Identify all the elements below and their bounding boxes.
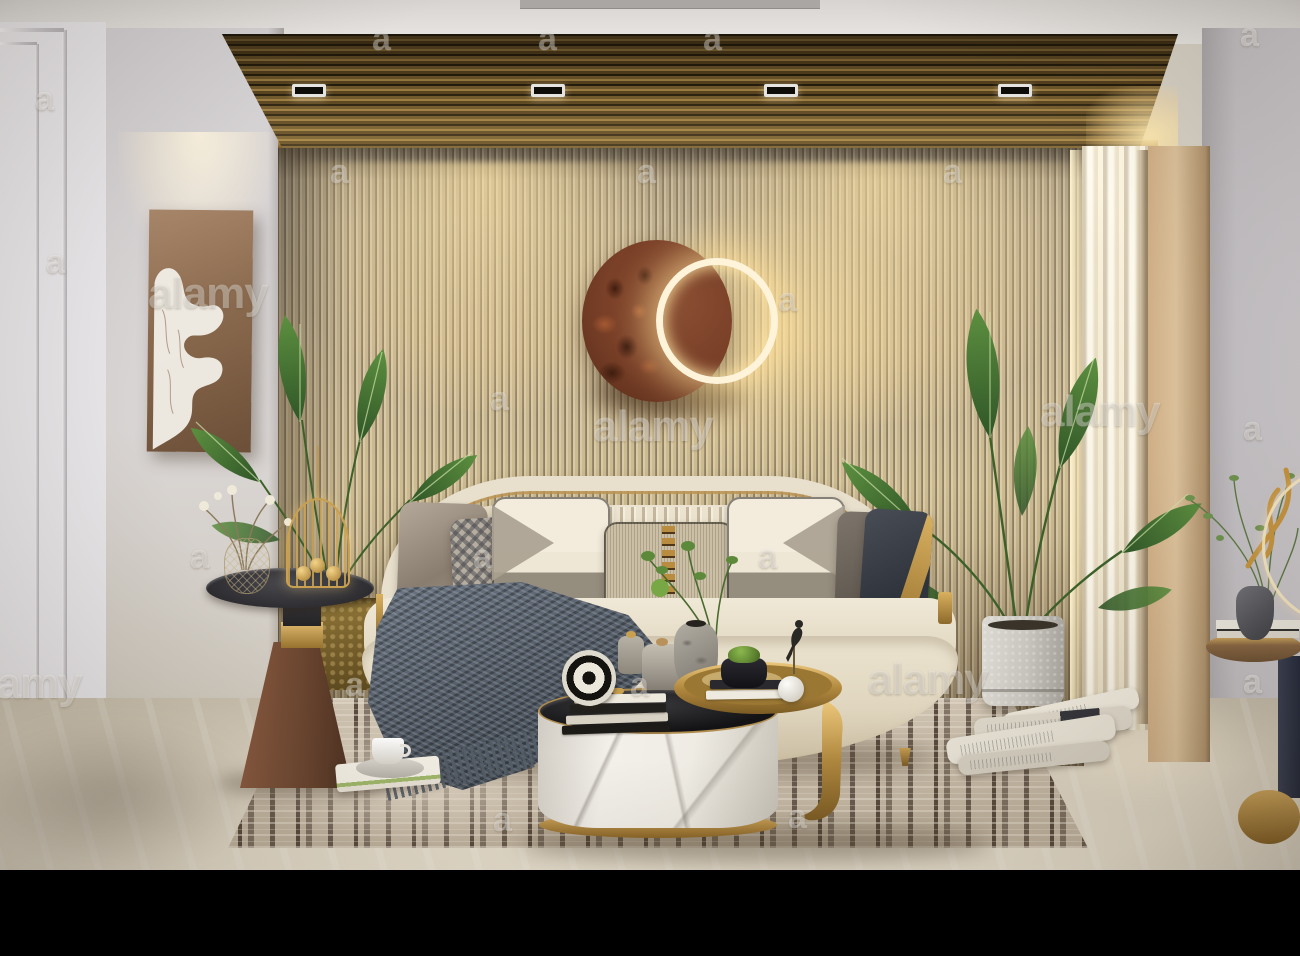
wire-glass-vase xyxy=(224,538,270,594)
concrete-planter xyxy=(982,616,1064,706)
figurine-sculpture xyxy=(772,612,816,676)
panel-molding xyxy=(35,44,39,704)
sofa-gold-trim xyxy=(938,592,952,624)
floor-shadow xyxy=(0,716,260,876)
classical-paneled-wall xyxy=(0,22,106,722)
gold-nesting-table xyxy=(672,616,852,828)
panel-molding xyxy=(62,30,67,720)
panel-molding xyxy=(0,28,64,32)
faceted-vase xyxy=(1236,586,1274,640)
alamy-bottom-bar: alamy Image ID: 3CPA35X www.alamy.com xyxy=(0,870,1300,956)
alamy-stock-photo: aaaaaaaaaaaaaaaaaaaaalamyalamyalamyalamy… xyxy=(0,0,1300,956)
gold-ball xyxy=(310,558,325,573)
panel-molding xyxy=(0,42,37,45)
gold-ball xyxy=(296,566,311,581)
ceiling-vent xyxy=(520,0,820,9)
gold-ball xyxy=(326,566,341,581)
wood-slat-ceiling xyxy=(222,34,1178,148)
recessed-spotlight xyxy=(998,84,1032,97)
corner-table-pedestal xyxy=(1278,656,1300,798)
recessed-spotlight xyxy=(292,84,326,97)
recessed-spotlight xyxy=(764,84,798,97)
cage-hanger-wire xyxy=(317,446,319,502)
recessed-spotlight xyxy=(531,84,565,97)
white-sphere xyxy=(778,676,804,702)
moss-ball xyxy=(728,646,760,663)
book xyxy=(706,689,786,699)
ceiling-cove-glow xyxy=(1086,86,1178,148)
led-ring-light xyxy=(656,258,778,384)
corner-table-gold-base xyxy=(1238,790,1300,844)
